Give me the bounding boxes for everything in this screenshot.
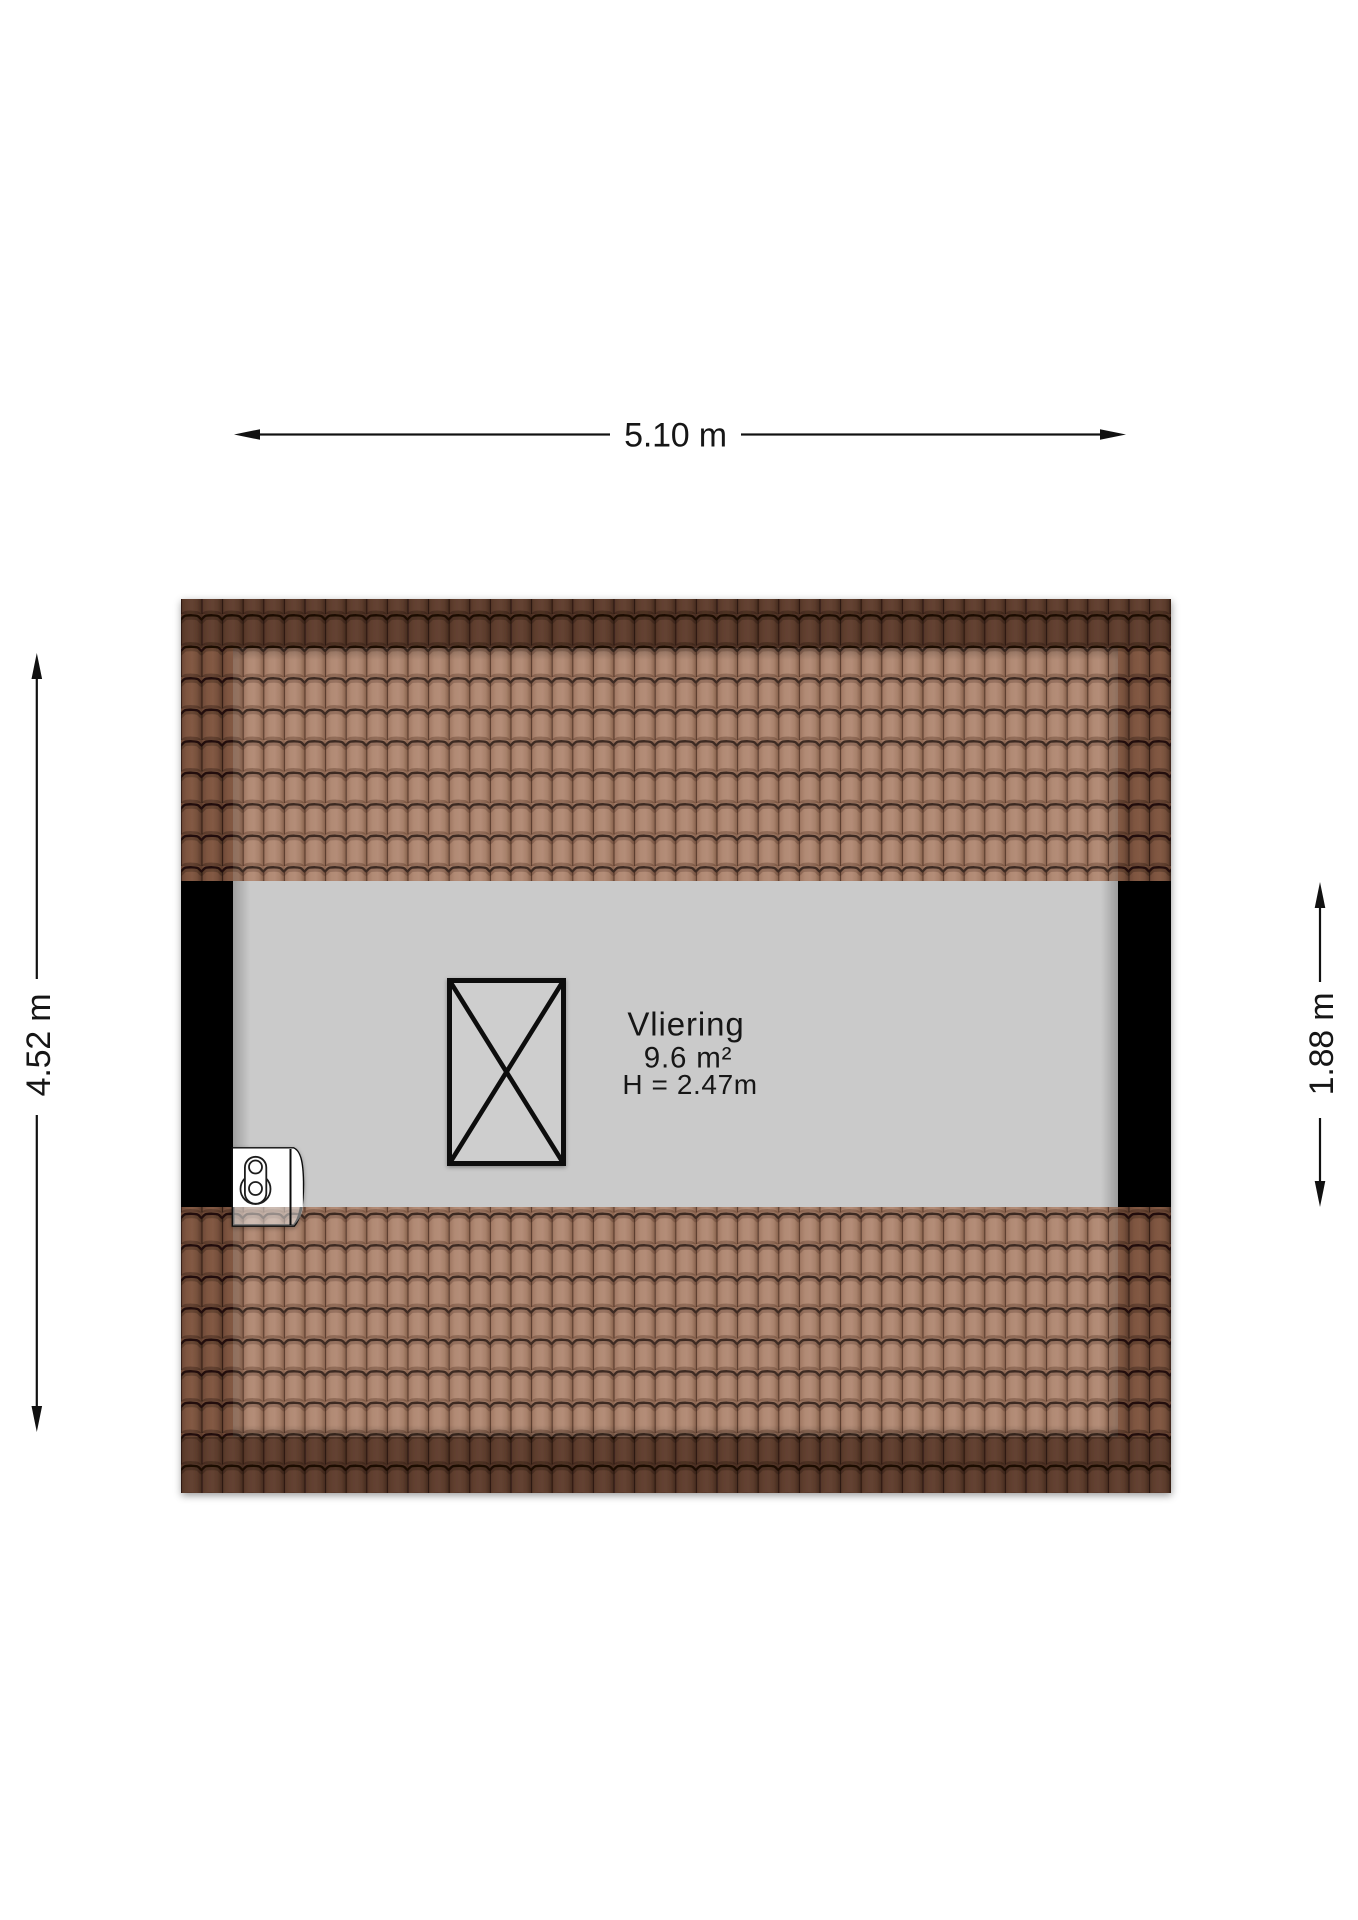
svg-text:H = 2.47m: H = 2.47m [622,1069,757,1100]
svg-text:4.52 m: 4.52 m [20,994,58,1097]
svg-text:1.88 m: 1.88 m [1303,993,1341,1096]
svg-text:Vliering: Vliering [627,1006,744,1043]
svg-text:5.10 m: 5.10 m [624,417,727,455]
